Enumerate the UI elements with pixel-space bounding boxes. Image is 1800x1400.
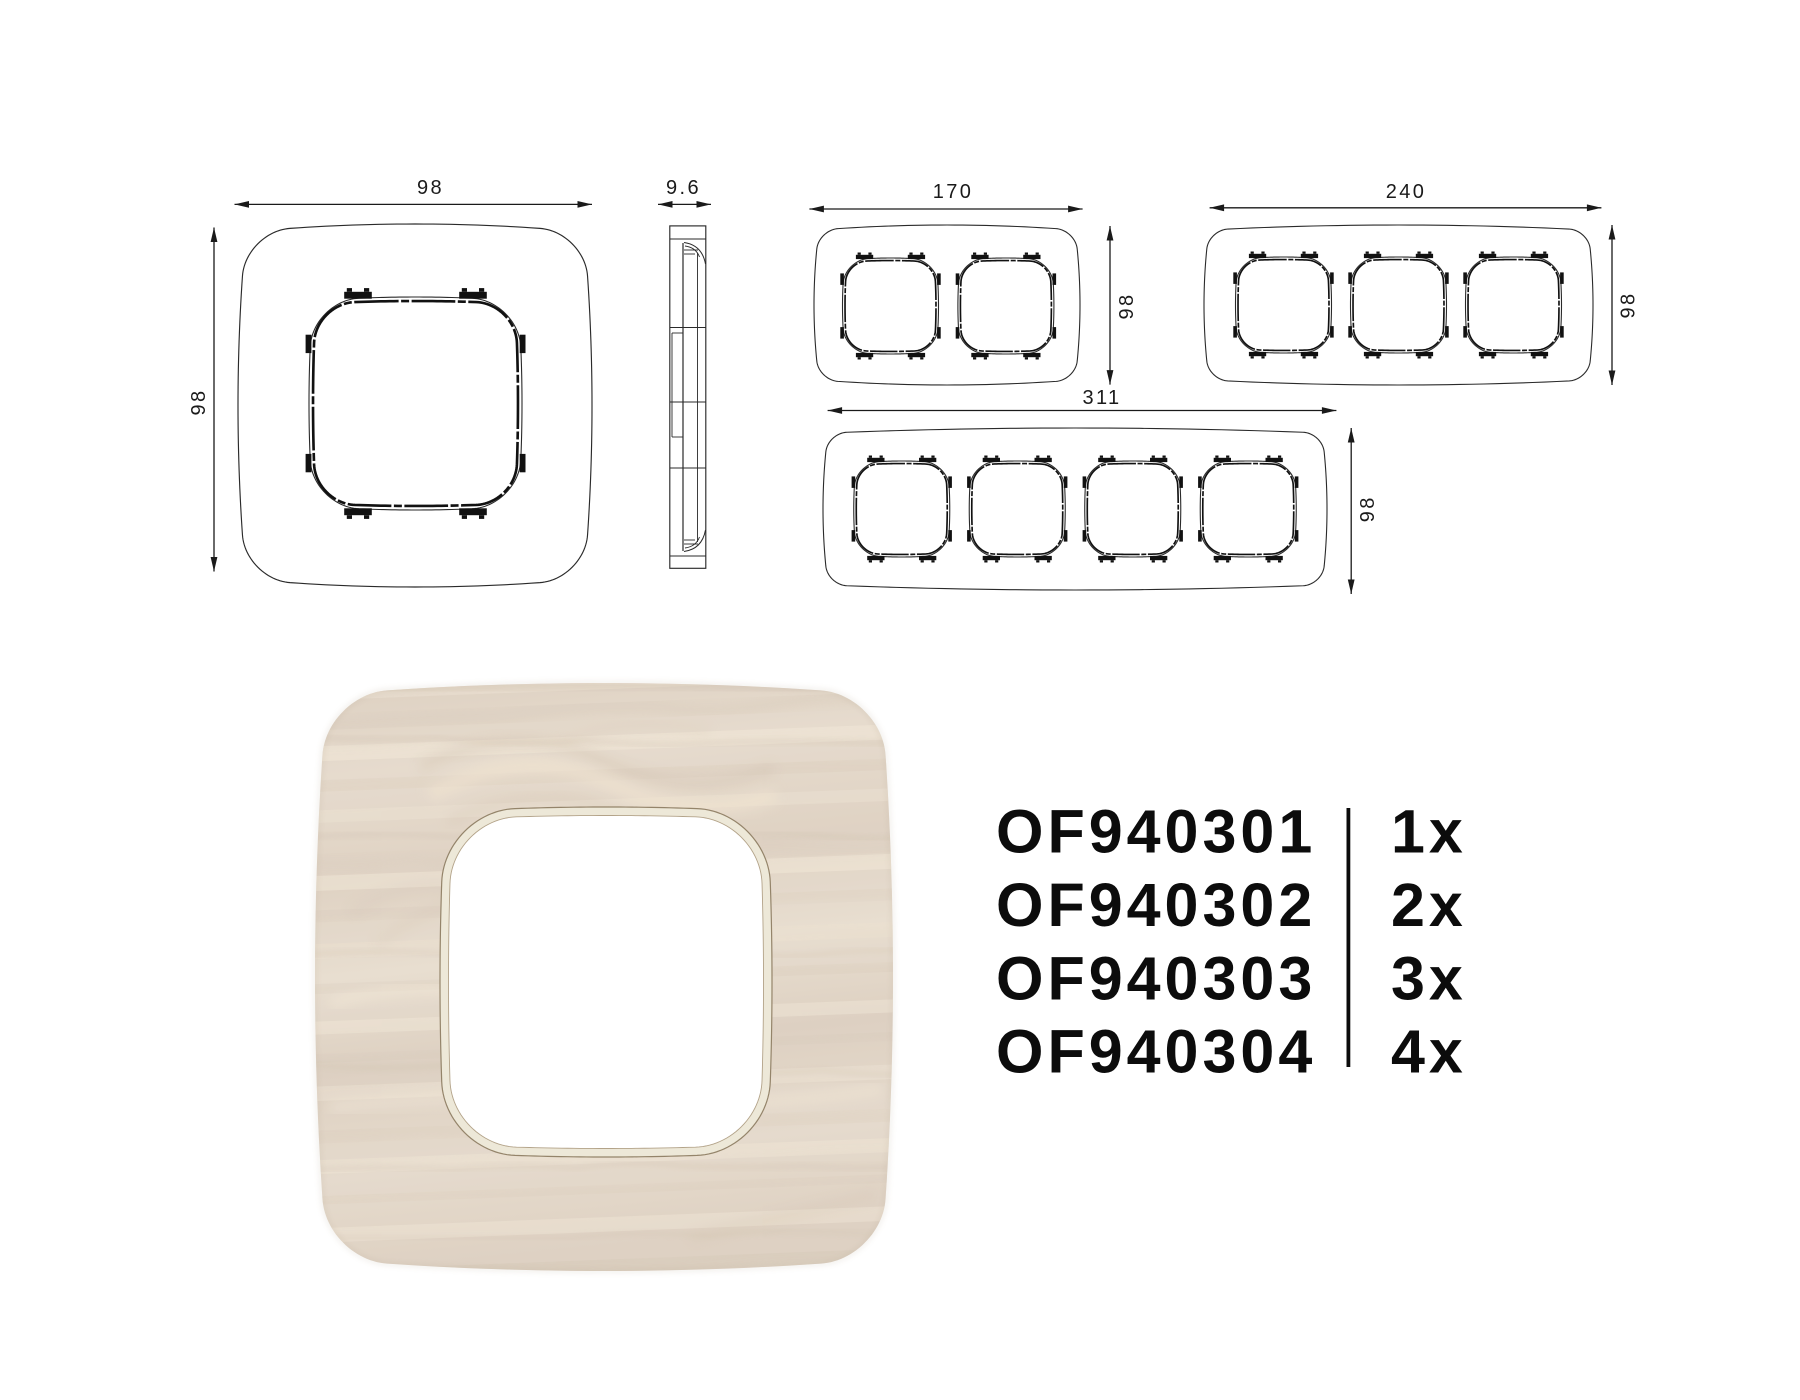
svg-text:9.6: 9.6 [666, 177, 701, 199]
svg-text:98: 98 [1618, 291, 1640, 318]
svg-text:1x: 1x [1391, 798, 1467, 866]
svg-text:4x: 4x [1391, 1018, 1467, 1086]
svg-text:98: 98 [1357, 495, 1379, 522]
svg-text:2x: 2x [1391, 871, 1467, 939]
svg-text:311: 311 [1082, 387, 1121, 409]
svg-text:OF940301: OF940301 [996, 798, 1316, 866]
svg-text:98: 98 [417, 177, 444, 199]
svg-text:170: 170 [933, 181, 974, 203]
svg-text:98: 98 [1116, 292, 1138, 319]
svg-text:OF940302: OF940302 [996, 871, 1316, 939]
svg-text:240: 240 [1386, 181, 1427, 203]
svg-text:OF940303: OF940303 [996, 944, 1316, 1012]
svg-text:98: 98 [188, 388, 210, 415]
svg-text:OF940304: OF940304 [996, 1018, 1316, 1086]
svg-text:3x: 3x [1391, 944, 1467, 1012]
